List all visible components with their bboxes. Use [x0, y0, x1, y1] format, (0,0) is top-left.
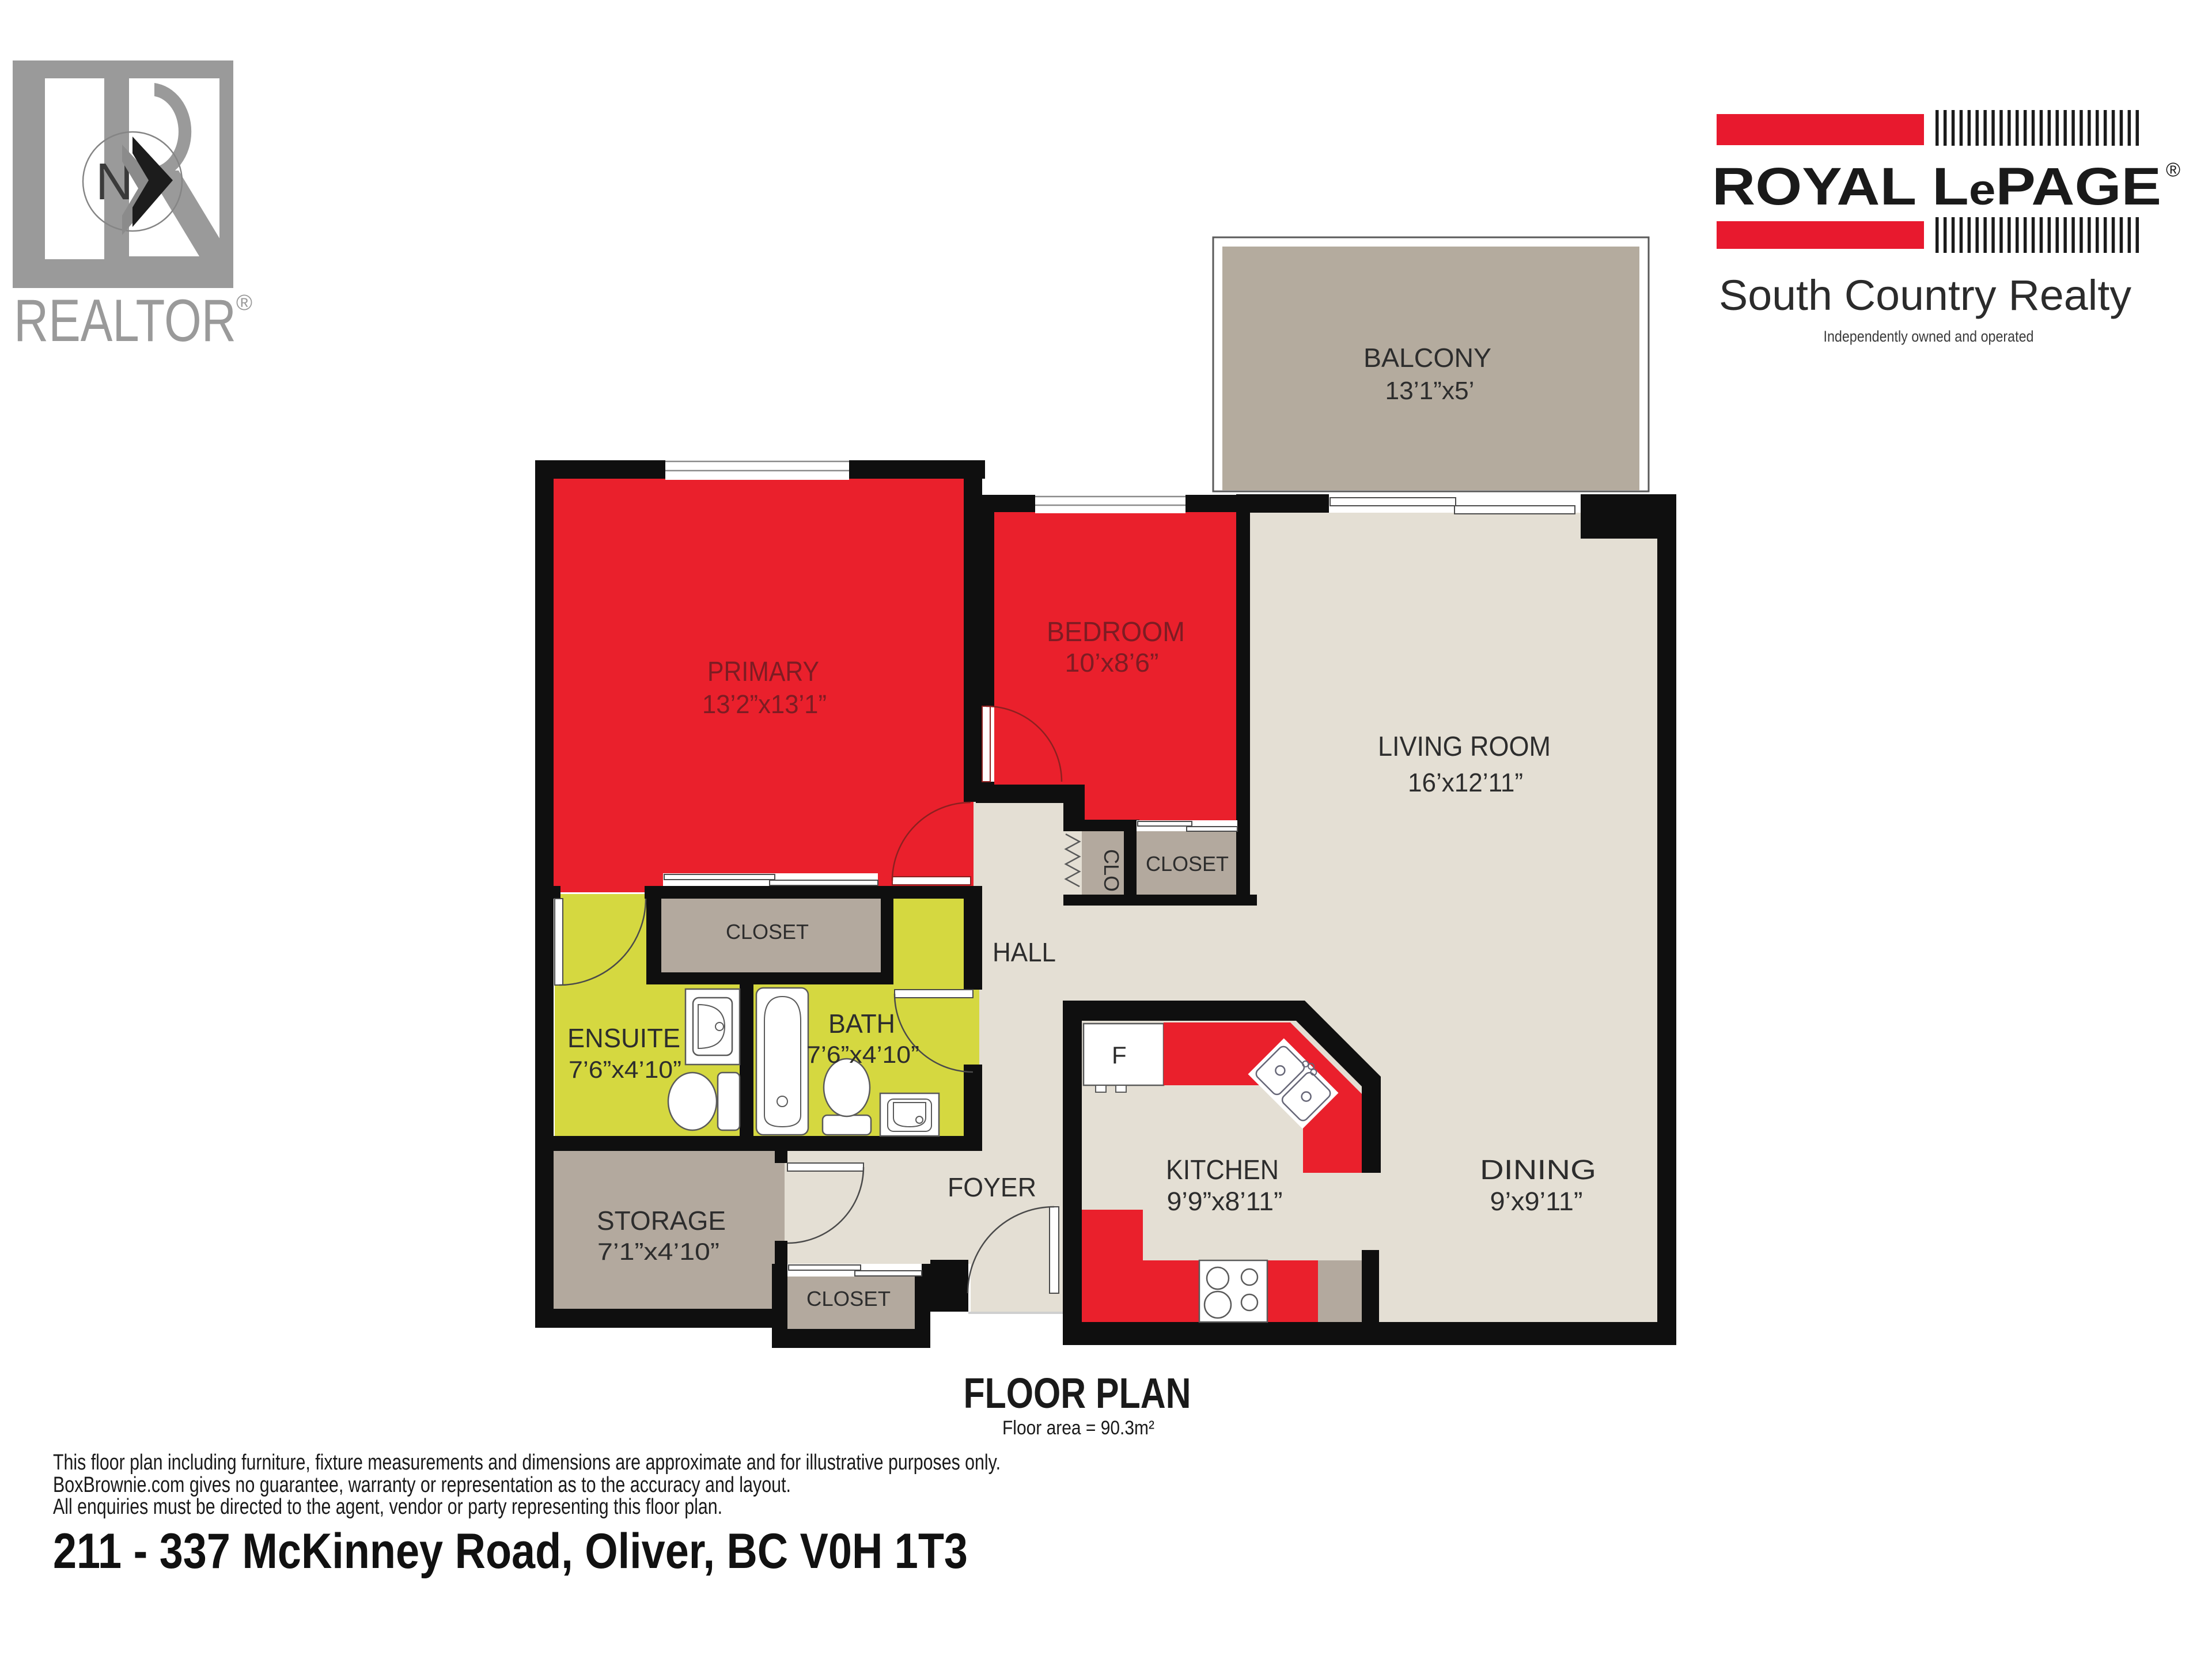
- svg-text:Independently owned and operat: Independently owned and operated: [1824, 328, 2034, 345]
- svg-text:STORAGE: STORAGE: [597, 1206, 726, 1236]
- svg-text:7’1”x4’10”: 7’1”x4’10”: [597, 1238, 719, 1265]
- svg-text:®: ®: [236, 291, 252, 315]
- svg-text:Floor area = 90.3m²: Floor area = 90.3m²: [1002, 1417, 1154, 1439]
- svg-text:16’x12’11”: 16’x12’11”: [1408, 768, 1523, 797]
- svg-text:DINING: DINING: [1480, 1155, 1596, 1185]
- svg-text:CLO: CLO: [1100, 849, 1123, 892]
- svg-text:LIVING ROOM: LIVING ROOM: [1378, 732, 1551, 762]
- svg-text:7’6”x4’10”: 7’6”x4’10”: [806, 1041, 919, 1068]
- svg-text:BEDROOM: BEDROOM: [1047, 617, 1185, 647]
- svg-text:9’x9’11”: 9’x9’11”: [1490, 1187, 1583, 1216]
- svg-text:211 - 337 McKinney Road, Olive: 211 - 337 McKinney Road, Oliver, BC V0H …: [53, 1524, 968, 1579]
- svg-text:All enquiries must be directed: All enquiries must be directed to the ag…: [53, 1495, 722, 1519]
- svg-text:9’9”x8’11”: 9’9”x8’11”: [1167, 1187, 1283, 1216]
- svg-text:ENSUITE: ENSUITE: [567, 1023, 680, 1053]
- svg-text:BoxBrownie.com gives no guaran: BoxBrownie.com gives no guarantee, warra…: [53, 1473, 791, 1497]
- svg-text:BALCONY: BALCONY: [1363, 343, 1491, 373]
- svg-text:South Country Realty: South Country Realty: [1719, 271, 2131, 319]
- svg-text:This floor plan including furn: This floor plan including furniture, fix…: [53, 1450, 1001, 1475]
- svg-text:®: ®: [2166, 159, 2180, 181]
- svg-text:13’2”x13’1”: 13’2”x13’1”: [702, 690, 827, 719]
- svg-text:CLOSET: CLOSET: [1146, 852, 1229, 876]
- svg-text:CLOSET: CLOSET: [726, 920, 809, 944]
- svg-text:HALL: HALL: [993, 937, 1056, 967]
- svg-text:KITCHEN: KITCHEN: [1166, 1155, 1279, 1185]
- svg-text:10’x8’6”: 10’x8’6”: [1065, 648, 1159, 677]
- svg-text:PRIMARY: PRIMARY: [707, 657, 819, 687]
- svg-text:REALTOR: REALTOR: [14, 287, 236, 354]
- svg-text:13’1”x5’: 13’1”x5’: [1385, 377, 1475, 405]
- svg-text:7’6”x4’10”: 7’6”x4’10”: [569, 1056, 681, 1083]
- svg-text:FLOOR PLAN: FLOOR PLAN: [964, 1369, 1191, 1417]
- svg-text:CLOSET: CLOSET: [806, 1287, 891, 1310]
- svg-text:F: F: [1112, 1041, 1127, 1069]
- svg-text:FOYER: FOYER: [948, 1172, 1036, 1202]
- svg-text:BATH: BATH: [828, 1009, 895, 1039]
- svg-text:ROYAL LePAGE: ROYAL LePAGE: [1712, 157, 2161, 216]
